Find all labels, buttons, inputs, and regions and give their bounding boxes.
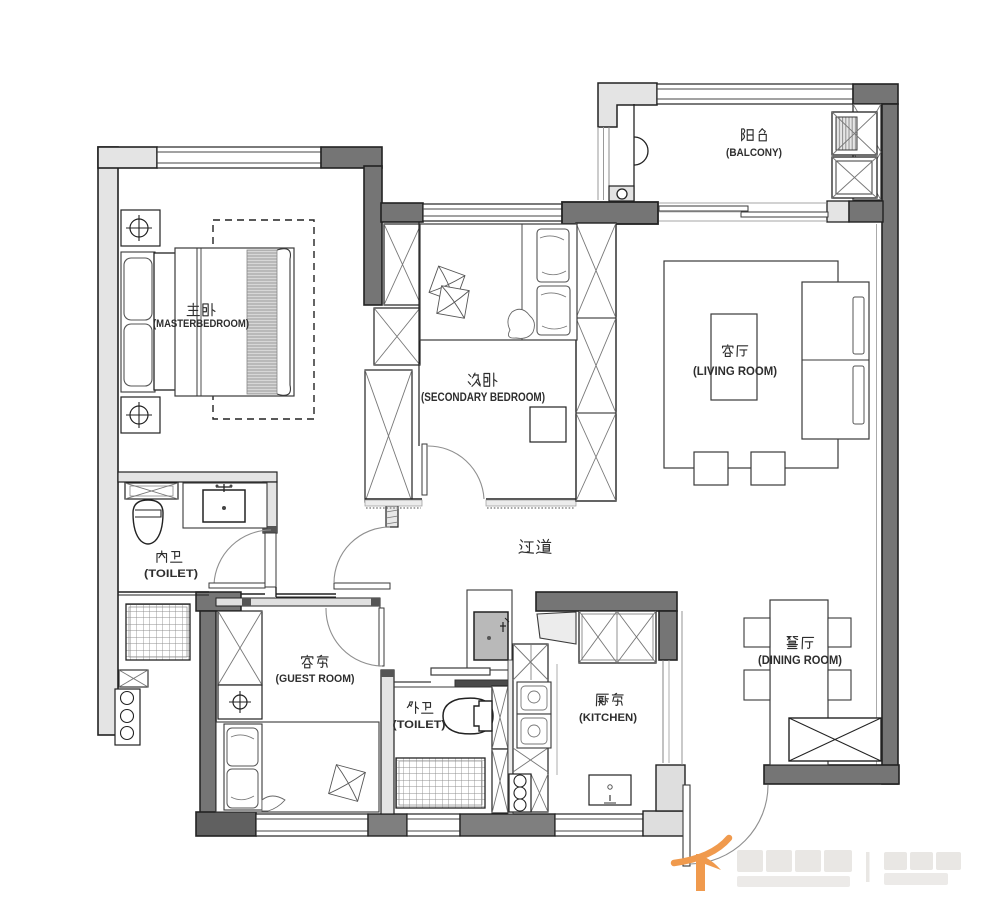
svg-text:(GUEST ROOM): (GUEST ROOM) bbox=[276, 673, 355, 685]
svg-text:(DINING ROOM): (DINING ROOM) bbox=[758, 655, 842, 667]
svg-text:(SECONDARY BEDROOM): (SECONDARY BEDROOM) bbox=[421, 390, 545, 404]
svg-text:(KITCHEN): (KITCHEN) bbox=[579, 712, 637, 724]
svg-text:(TOILET): (TOILET) bbox=[144, 568, 198, 580]
svg-text:(BALCONY): (BALCONY) bbox=[726, 147, 782, 159]
svg-text:(TOILET): (TOILET) bbox=[393, 719, 446, 731]
svg-text:(LIVING ROOM): (LIVING ROOM) bbox=[693, 366, 777, 378]
svg-text:(MASTERBEDROOM): (MASTERBEDROOM) bbox=[153, 318, 249, 330]
